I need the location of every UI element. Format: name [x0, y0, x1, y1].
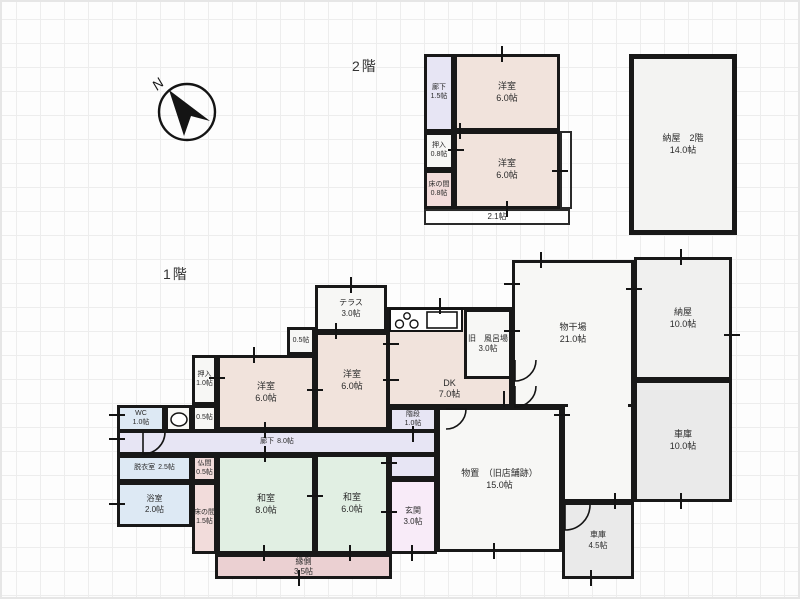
- window-mark: [307, 389, 323, 391]
- room-dressing: 脱衣室2.5帖: [117, 455, 192, 482]
- room-2f-tokonoma: 床の間0.8帖: [424, 170, 454, 209]
- room-1f-tokonoma: 床の間1.5帖: [192, 482, 217, 554]
- window-mark: [263, 545, 265, 561]
- room-1f-closet: 押入1.0帖: [192, 355, 217, 405]
- window-mark: [109, 438, 125, 440]
- window-mark: [448, 149, 464, 151]
- kitchen-counter: [389, 308, 463, 332]
- room-2f-western-b: 洋室6.0帖: [454, 131, 560, 209]
- window-mark: [298, 570, 300, 586]
- room-bath: 浴室2.0帖: [117, 482, 192, 527]
- window-mark: [411, 545, 413, 561]
- window-mark: [350, 277, 352, 293]
- door-arc: [514, 385, 537, 408]
- window-mark: [501, 46, 503, 62]
- window-mark: [412, 426, 414, 442]
- room-1f-barn: 納屋10.0帖: [634, 257, 732, 380]
- window-mark: [614, 493, 616, 509]
- window-mark: [264, 422, 266, 438]
- room-butsuma: 仏間0.5帖: [192, 455, 217, 482]
- window-mark: [552, 170, 568, 172]
- window-mark: [383, 379, 399, 381]
- window-mark: [540, 252, 542, 268]
- window-mark: [253, 347, 255, 363]
- room-2f-hallway: 廊下1.5帖: [424, 54, 454, 132]
- window-mark: [335, 323, 337, 339]
- window-mark: [626, 288, 642, 290]
- window-mark: [506, 201, 508, 217]
- balcony-bottom: 2.1帖: [424, 209, 570, 225]
- compass-north-label: N: [149, 74, 168, 93]
- wall-opening-patch: [568, 401, 628, 410]
- window-mark: [349, 545, 351, 561]
- window-mark: [381, 462, 397, 464]
- window-mark: [264, 446, 266, 462]
- window-mark: [381, 511, 397, 513]
- door-arc: [514, 359, 537, 382]
- sink-icon: [427, 312, 457, 328]
- door-arc: [445, 408, 467, 430]
- door-arc: [142, 431, 166, 455]
- window-mark: [503, 391, 505, 407]
- window-mark: [554, 414, 570, 416]
- window-mark: [109, 503, 125, 505]
- window-mark: [459, 123, 461, 139]
- door-arc: [564, 504, 591, 531]
- room-closet-top: 0.5帖: [287, 327, 315, 355]
- room-2f-closet: 押入0.8帖: [424, 132, 454, 170]
- room-2f-barn: 納屋 2階14.0帖: [629, 54, 737, 235]
- window-mark: [439, 298, 441, 314]
- floor-2-label: 2階: [352, 56, 378, 76]
- window-mark: [209, 377, 225, 379]
- room-garage-10: 車庫10.0帖: [634, 380, 732, 502]
- compass-icon: N: [147, 64, 227, 148]
- room-wc: WC1.0帖: [117, 405, 165, 432]
- compass: N: [147, 64, 227, 153]
- window-mark: [307, 495, 323, 497]
- room-japanese-6: 和室6.0帖: [315, 454, 389, 554]
- window-mark: [724, 334, 740, 336]
- window-mark: [504, 330, 520, 332]
- window-mark: [680, 249, 682, 265]
- floor-plan-canvas: 2階 1階 N N 廊下1.5帖 押入0.8帖 床の間0.8帖 洋室6.0帖 洋…: [0, 0, 800, 599]
- window-mark: [493, 543, 495, 559]
- toilet-icon: [168, 410, 190, 429]
- room-entrance: 玄関3.0帖: [389, 479, 437, 554]
- window-mark: [109, 414, 125, 416]
- room-drying-area-ext: [562, 404, 634, 502]
- window-mark: [504, 283, 520, 285]
- room-western-mid: 洋室6.0帖: [315, 332, 389, 430]
- window-mark: [590, 570, 592, 586]
- room-japanese-8: 和室8.0帖: [217, 455, 315, 554]
- floor-1-label: 1階: [163, 264, 189, 284]
- window-mark: [680, 493, 682, 509]
- room-hall-column: [389, 454, 437, 479]
- room-western-left: 洋室6.0帖: [217, 355, 315, 430]
- room-closet-mid: 0.5帖: [192, 405, 217, 432]
- room-engawa: 縁側3.5帖: [215, 554, 392, 579]
- room-2f-western-a: 洋室6.0帖: [454, 54, 560, 131]
- room-old-bath: 旧 風呂場3.0帖: [464, 309, 512, 379]
- window-mark: [383, 343, 399, 345]
